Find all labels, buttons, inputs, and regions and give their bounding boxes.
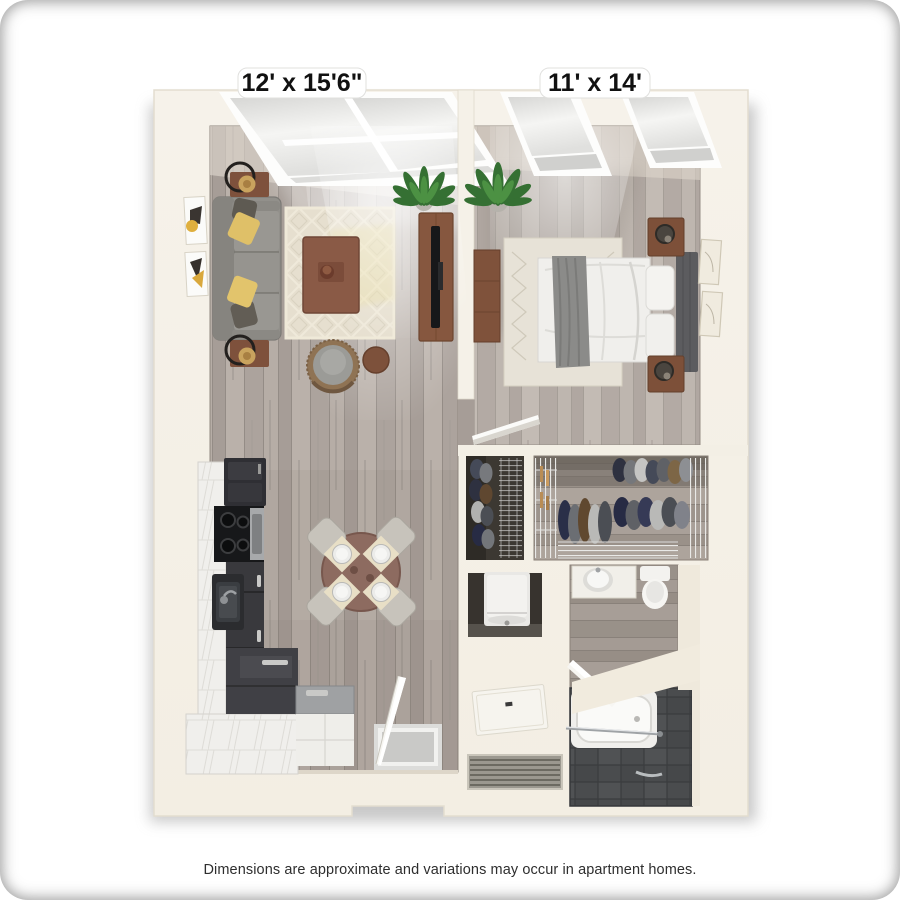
svg-text:11' x 14': 11' x 14' <box>548 69 642 97</box>
svg-text:12' x 15'6": 12' x 15'6" <box>241 69 362 97</box>
